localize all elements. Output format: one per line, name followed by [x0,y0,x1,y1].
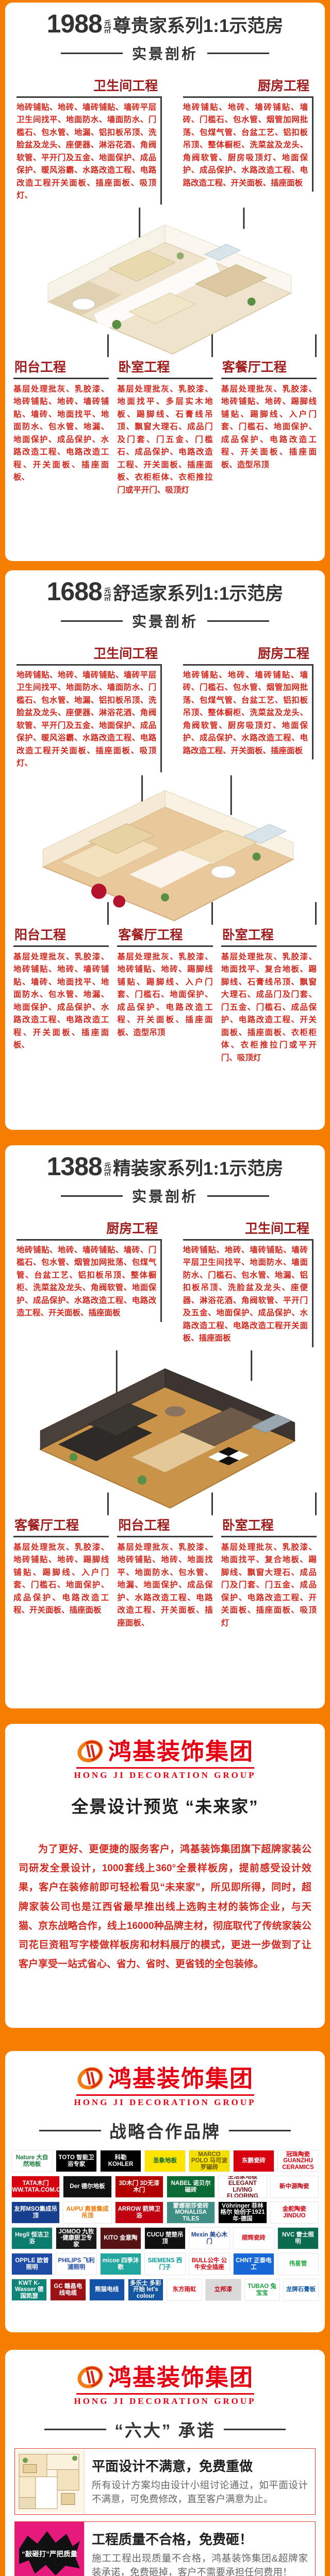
brand-logo: 生活家地板 ELEGANT LIVING FLOORING [218,2176,267,2198]
logo-underline [76,2094,254,2096]
brand-logo: 立邦漆 [205,2279,241,2301]
brand-logo: NABEL 诺贝尔磁砖 [167,2176,215,2198]
section-bedroom: 卧室工程 基层处理批灰、乳胶漆、地面找平、复合地板、踢脚线、飘窗大理石、成品门及… [221,1515,317,1630]
section-bedroom: 卧室工程 基层处理批灰、乳胶漆、地面找平、多层实木地板、踢脚线、石膏线吊顶、飘窗… [117,357,212,497]
section-label: 客餐厅工程 [117,925,212,947]
top-sections: 卫生间工程 地砖铺贴、地砖、墙砖铺贴、墙砖平层卫生间找平、地面防水、墙面防水、门… [5,643,325,772]
series-name: 尊贵家系列1:1示范房 [113,16,284,37]
floorplan-thumbnail [15,2449,85,2514]
brand-logo: 蒙娜丽莎瓷砖 MONALISA TILES [167,2201,215,2224]
section-kitchen: 厨房工程 地砖铺贴、地砖、墙砖铺贴、墙砖、门槛石、包水管、烟管加网批荡、包煤气管… [183,643,313,772]
divider-line [61,620,123,622]
hongji-logo-icon [76,2064,104,2092]
brand-logo: 顺辉瓷砖 [233,2227,274,2249]
brand-logo: TATA木门 WWW.TATA.COM.CN [11,2176,60,2198]
section-label: 卧室工程 [221,1515,317,1537]
section-items: 基层处理批灰、乳胶漆、地砖铺贴、地砖、踢脚线铺贴、踢脚线、入户门套、门槛石、地面… [117,947,212,1039]
section-label: 卧室工程 [221,925,317,947]
hongji-logo-en: HONG JI DECORATION GROUP [5,1770,325,1781]
section-label: 卧室工程 [117,357,212,379]
series-subtitle: 实景剖析 [5,1185,325,1206]
series-price: 1688 [47,579,102,604]
section-label: 卫生间工程 [16,643,162,666]
promises-title: “六大” 承诺 [5,2417,325,2442]
divider-line [44,2429,106,2430]
brand-row: 友邦MSO集成吊顶AUPU 奥普集成吊顶ARROW 箭牌卫浴蒙娜丽莎瓷砖 MON… [11,2201,319,2224]
section-items: 地砖铺贴、地砖、墙砖铺贴、墙砖、门槛石、包水管、烟管加网批荡、包煤气管、台盆工艺… [183,666,313,759]
panorama-card: 鸿基装饰集团 HONG JI DECORATION GROUP 全景设计预览 “… [5,1724,325,2028]
section-items: 基层处理批灰、乳胶漆、地砖铺贴、地砖、踢脚线铺贴、踢脚线、入户门套、门槛石、地面… [13,1537,109,1617]
section-label: 厨房工程 [16,1218,162,1241]
section-bathroom: 卫生间工程 地砖铺贴、地砖、墙砖铺贴、墙砖平层卫生间找平、地面防水、墙面防水、门… [16,643,162,772]
section-living-dining: 客餐厅工程 基层处理批灰、乳胶漆、地砖铺贴、地砖、踢脚线铺贴、踢脚线、入户门套、… [13,1515,109,1630]
series-title: 1988 元㎡ 尊贵家系列1:1示范房 [5,11,325,37]
hongji-logo-cn: 鸿基装饰集团 [108,2366,254,2389]
floorplan-illustration [12,774,318,924]
brand-logo: 新中源陶瓷 [270,2176,319,2198]
brand-logo: Nature 大自然地板 [11,2150,53,2172]
brand-logo: KWT K-Wasser 德国凯瑟 [11,2279,47,2301]
section-items: 地砖铺贴、地砖、墙砖铺贴、墙砖平层卫生间找平、地面防水、墙面防水、门槛石、包水管… [16,666,162,772]
section-label: 阳台工程 [117,1515,212,1537]
section-bathroom: 卫生间工程 地砖铺贴、地砖、墙砖铺贴、墙砖平层卫生间找平、地面防水、墙面防水、门… [16,76,162,205]
series-title: 1688 元㎡ 舒适家系列1:1示范房 [5,579,325,604]
brand-logo: 东鹏瓷砖 [233,2150,274,2172]
brand-logo: Hegll 恒洁卫浴 [11,2227,53,2249]
brand-row: Hegll 恒洁卫浴JOMOO 九牧·健康厨卫专家KITO 金意陶CUCU 楚楚… [11,2227,319,2249]
section-items: 基层处理批灰、乳胶漆、地砖铺贴、地砖、踢脚线铺贴、踢脚线、入户门套、门槛石、地面… [221,379,317,471]
brand-logo: TUBAO 兔宝宝 [244,2279,280,2301]
brand-logo: SIEMENS 西门子 [144,2253,186,2275]
brand-logo: 熊猫电线 [89,2279,125,2301]
series-name: 精装家系列1:1示范房 [113,1159,284,1179]
brand-logo: Vöhringer 菲林格尔 始创于1921年·德国 [218,2201,267,2224]
series-title: 1388 元㎡ 精装家系列1:1示范房 [5,1154,325,1179]
series-card-1688: 1688 元㎡ 舒适家系列1:1示范房 实景剖析 卫生间工程 地砖铺贴、地砖、墙… [5,570,325,1130]
logo-underline [76,2393,254,2395]
divider-line [207,53,269,54]
top-sections: 卫生间工程 地砖铺贴、地砖、墙砖铺贴、墙砖平层卫生间找平、地面防水、墙面防水、门… [5,76,325,205]
section-label: 卫生间工程 [183,1218,313,1241]
section-balcony: 阳台工程 基层处理批灰、乳胶漆、地砖铺贴、地砖、地面找平、地面防水、包水管、地漏… [117,1515,212,1630]
floorplan-render-1988 [12,207,318,356]
hongji-logo-en: HONG JI DECORATION GROUP [5,2396,325,2406]
brand-logo: 圣象地板 [144,2150,186,2172]
section-label: 客餐厅工程 [221,357,317,379]
floorplan-illustration [12,207,318,356]
section-balcony: 阳台工程 基层处理批灰、乳胶漆、地砖铺贴、地砖、墙砖铺贴、墙砖、地面找平、地面防… [13,357,109,497]
section-items: 基层处理批灰、乳胶漆、地砖铺贴、地砖、墙砖铺贴、墙砖、地面找平、地面防水、包水管… [13,379,109,484]
promise-title: 工程质量不合格，免费砸！ [92,2529,308,2548]
brand-logo: KITO 金意陶 [100,2227,141,2249]
brand-row: Nature 大自然地板TOTO 智能卫浴专家科勒 KOHLER圣象地板MARC… [11,2150,319,2172]
brands-title: 战略合作品牌 [5,2118,325,2143]
section-living-dining: 客餐厅工程 基层处理批灰、乳胶漆、地砖铺贴、地砖、踢脚线铺贴、踢脚线、入户门套、… [221,357,317,497]
series-subtitle: 实景剖析 [5,43,325,63]
promise-desc: 所有设计方案均由设计小组讨论通过，如平面设计不满意，可免费修改，直至客户满意为止… [92,2479,308,2506]
logo-underline [76,1767,254,1769]
series-price: 1388 [47,1154,102,1179]
brand-logo: PHILIPS 飞利浦照明 [56,2253,97,2275]
divider-line [207,1195,269,1197]
demolition-image: “敲砸打”严把质量 [15,2522,85,2576]
hongji-logo-en: HONG JI DECORATION GROUP [5,2097,325,2108]
section-label: 阳台工程 [13,357,109,379]
brand-logo: 伟星管 [277,2253,319,2275]
section-items: 地砖铺贴、地砖、墙砖铺贴、墙砖、门槛石、包水管、烟管加网批荡、包煤气管、台盆工艺… [16,1241,162,1322]
section-bathroom: 卫生间工程 地砖铺贴、地砖、墙砖铺贴、墙砖平层卫生间找平、地面防水、墙面防水、门… [183,1218,313,1347]
brand-row: OPPLE 欧普照明PHILIPS 飞利浦照明micoe 四季沐歌SIEMENS… [11,2253,319,2275]
series-card-1388: 1388 元㎡ 精装家系列1:1示范房 实景剖析 厨房工程 地砖铺贴、地砖、墙砖… [5,1145,325,1708]
brand-logo: NVC 雷士照明 [277,2227,319,2249]
brand-logo: 冠珠陶瓷 GUANZHU CERAMICS [277,2150,319,2172]
section-items: 地砖铺贴、地砖、墙砖铺贴、墙砖平层卫生间找平、地面防水、墙面防水、门槛石、包水管… [183,1241,313,1347]
panorama-title: 全景设计预览 “未来家” [5,1793,325,1818]
promo-page: 1988 元㎡ 尊贵家系列1:1示范房 实景剖析 卫生间工程 地砖铺贴、地砖、墙… [0,0,330,2576]
divider-line [229,2130,291,2131]
hongji-logo-cn: 鸿基装饰集团 [108,1740,254,1763]
promise-desc: 施工工程出现质量不合格，鸿基装饰集团&超牌家装承诺，免费砸掉，客户不需要承担任何… [92,2552,308,2576]
hongji-logo: 鸿基装饰集团 HONG JI DECORATION GROUP [5,2051,325,2108]
price-unit: 元㎡ [104,1162,111,1177]
brand-logo: TOTO 智能卫浴专家 [56,2150,97,2172]
brand-logo: 3D木门 3D无漆木门 [115,2176,163,2198]
hongji-logo: 鸿基装饰集团 HONG JI DECORATION GROUP [5,2350,325,2406]
series-price: 1988 [47,11,102,37]
series-subtitle: 实景剖析 [5,611,325,631]
brand-logo: 多乐士 多彩开始 let's colour [128,2279,163,2301]
bottom-sections: 客餐厅工程 基层处理批灰、乳胶漆、地砖铺贴、地砖、踢脚线铺贴、踢脚线、入户门套、… [5,1514,325,1630]
brand-logo: ARROW 箭牌卫浴 [115,2201,163,2224]
section-label: 卫生间工程 [16,76,162,98]
brand-logo: 东方雨虹 [167,2279,202,2301]
promise-item-redesign: 平面设计不满意，免费重做 所有设计方案均由设计小组讨论通过，如平面设计不满意，可… [14,2448,316,2515]
section-items: 地砖铺贴、地砖、墙砖铺贴、墙砖平层卫生间找平、地面防水、墙面防水、门槛石、包水管… [16,98,162,205]
series-name: 舒适家系列1:1示范房 [113,584,284,604]
brand-row: KWT K-Wasser 德国凯瑟GC 赣昌电线电缆熊猫电线多乐士 多彩开始 l… [11,2279,319,2301]
brand-grid: Nature 大自然地板TOTO 智能卫浴专家科勒 KOHLER圣象地板MARC… [5,2143,325,2301]
brand-logo: Der 德尔地板 [63,2176,111,2198]
section-label: 阳台工程 [13,925,109,947]
promises-card: 鸿基装饰集团 HONG JI DECORATION GROUP “六大” 承诺 [5,2350,325,2576]
brand-logo: 友邦MSO集成吊顶 [11,2201,60,2224]
floorplan-render-1388 [12,1349,318,1514]
section-items: 基层处理批灰、乳胶漆、地面找平、多层实木地板、踢脚线、石膏线吊顶、飘窗大理石、成… [117,379,212,497]
brand-logo: OPPLE 欧普照明 [11,2253,53,2275]
divider-line [224,2429,286,2430]
demolition-caption: “敲砸打”严把质量 [22,2548,77,2558]
brand-logo: micoe 四季沐歌 [100,2253,141,2275]
price-unit: 元㎡ [104,20,111,35]
brand-logo: JOMOO 九牧·健康厨卫专家 [56,2227,97,2249]
hongji-logo-icon [76,2363,104,2391]
bottom-sections: 阳台工程 基层处理批灰、乳胶漆、地砖铺贴、地砖、墙砖铺贴、墙砖、地面找平、地面防… [5,356,325,497]
brand-logo: 龙牌石膏板 [283,2279,319,2301]
brand-logo: AUPU 奥普集成吊顶 [63,2201,111,2224]
section-balcony: 阳台工程 基层处理批灰、乳胶漆、地砖铺贴、地砖、墙砖铺贴、墙砖、地面找平、地面防… [13,925,109,1064]
divider-line [61,53,123,54]
section-items: 基层处理批灰、乳胶漆、地面找平、复合地板、踢脚线、石膏线吊顶、飘窗大理石、成品门… [221,947,317,1064]
section-bedroom: 卧室工程 基层处理批灰、乳胶漆、地面找平、复合地板、踢脚线、石膏线吊顶、飘窗大理… [221,925,317,1064]
promise-item-quality: “敲砸打”严把质量 工程质量不合格，免费砸！ 施工工程出现质量不合格，鸿基装饰集… [14,2521,316,2576]
section-items: 基层处理批灰、乳胶漆、地面找平、复合地板、踢脚线、飘窗大理石、成品门及门套、门五… [221,1537,317,1630]
brand-logo: 金舵陶瓷 JINDUO [270,2201,319,2224]
bottom-sections: 阳台工程 基层处理批灰、乳胶漆、地砖铺贴、地砖、墙砖铺贴、墙砖、地面找平、地面防… [5,924,325,1064]
brand-logo: Mexin 美心木门 [189,2227,230,2249]
brand-logo: CUCU 楚楚吊顶 [144,2227,186,2249]
panorama-body: 为了更好、更便捷的服务客户，鸿基装饰集团旗下超牌家装公司研发全景设计，1000套… [5,1832,325,1973]
section-items: 地砖铺贴、地砖、墙砖铺贴、墙砖、门槛石、包水管、烟管加网批荡、包煤气管、台盆工艺… [183,98,313,192]
section-kitchen: 厨房工程 地砖铺贴、地砖、墙砖铺贴、墙砖、门槛石、包水管、烟管加网批荡、包煤气管… [183,76,313,205]
section-label: 厨房工程 [183,76,313,98]
price-unit: 元㎡ [104,587,111,602]
section-label: 厨房工程 [183,643,313,666]
brand-row: TATA木门 WWW.TATA.COM.CNDer 德尔地板3D木门 3D无漆木… [11,2176,319,2198]
brands-card: 鸿基装饰集团 HONG JI DECORATION GROUP 战略合作品牌 N… [5,2051,325,2332]
divider-line [207,620,269,622]
brand-logo: GC 赣昌电线电缆 [50,2279,86,2301]
brand-logo: CHNT 正泰电工 [233,2253,274,2275]
floorplan-render-1688 [12,774,318,924]
brand-logo: 科勒 KOHLER [100,2150,141,2172]
divider-line [61,1195,123,1197]
hongji-logo: 鸿基装饰集团 HONG JI DECORATION GROUP [5,1724,325,1781]
hongji-logo-cn: 鸿基装饰集团 [108,2067,254,2090]
series-card-1988: 1988 元㎡ 尊贵家系列1:1示范房 实景剖析 卫生间工程 地砖铺贴、地砖、墙… [5,3,325,561]
section-label: 客餐厅工程 [13,1515,109,1537]
top-sections: 厨房工程 地砖铺贴、地砖、墙砖铺贴、墙砖、门槛石、包水管、烟管加网批荡、包煤气管… [5,1218,325,1347]
section-kitchen: 厨房工程 地砖铺贴、地砖、墙砖铺贴、墙砖、门槛石、包水管、烟管加网批荡、包煤气管… [16,1218,162,1347]
section-items: 基层处理批灰、乳胶漆、地砖铺贴、地砖、墙砖铺贴、墙砖、地面找平、地面防水、包水管… [13,947,109,1052]
brand-logo: MARCO POLO 马可波罗磁砖 [189,2150,230,2172]
promise-title: 平面设计不满意，免费重做 [92,2456,308,2475]
section-living-dining: 客餐厅工程 基层处理批灰、乳胶漆、地砖铺贴、地砖、踢脚线铺贴、踢脚线、入户门套、… [117,925,212,1064]
hongji-logo-icon [76,1737,104,1765]
divider-line [39,2130,101,2131]
section-items: 基层处理批灰、乳胶漆、地砖铺贴、地砖、地面找平、地面防水、包水管、地漏、地面保护… [117,1537,212,1630]
floorplan-illustration [12,1349,318,1514]
brand-logo: BULL公牛 公牛安全插座 [189,2253,230,2275]
